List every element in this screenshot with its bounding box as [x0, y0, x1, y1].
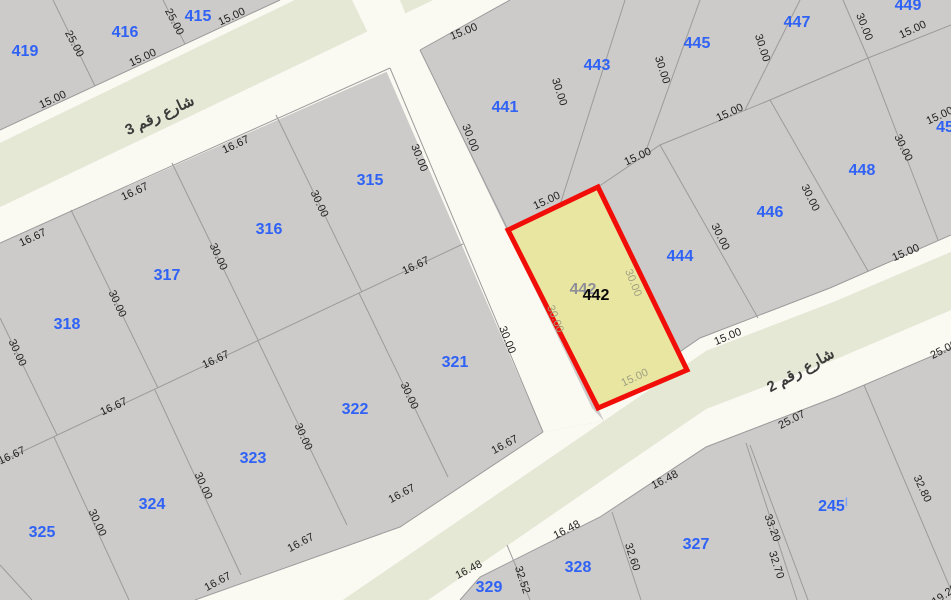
parcel-label-324[interactable]: 324	[139, 496, 166, 513]
parcel-label-323[interactable]: 323	[240, 450, 267, 467]
cadastral-map[interactable]: 25.0025.0015.0015.0015.0016.6716.6716.67…	[0, 0, 951, 600]
parcel-label-448[interactable]: 448	[849, 162, 876, 179]
parcel-label-447[interactable]: 447	[784, 14, 811, 31]
map-viewport[interactable]: 25.0025.0015.0015.0015.0016.6716.6716.67…	[0, 0, 951, 600]
parcel-label-329[interactable]: 329	[476, 579, 503, 596]
parcel-label-444[interactable]: 444	[667, 248, 694, 265]
parcel-label-315[interactable]: 315	[357, 172, 384, 189]
parcel-label-416[interactable]: 416	[112, 24, 139, 41]
parcel-label-449[interactable]: 449	[895, 0, 922, 14]
parcel-label-322[interactable]: 322	[342, 401, 369, 418]
parcel-label-441[interactable]: 441	[492, 99, 519, 116]
parcel-label-443[interactable]: 443	[584, 57, 611, 74]
parcel-label-316[interactable]: 316	[256, 221, 283, 238]
parcel-label-419[interactable]: 419	[12, 43, 39, 60]
parcel-label-245[interactable]: 245ا	[818, 497, 848, 515]
parcel-label-415[interactable]: 415	[185, 8, 212, 25]
parcel-label-325[interactable]: 325	[29, 524, 56, 541]
parcel-label-446[interactable]: 446	[757, 204, 784, 221]
parcel-label-317[interactable]: 317	[154, 267, 181, 284]
highlighted-parcel-label[interactable]: 442	[583, 287, 610, 304]
parcel-label-321[interactable]: 321	[442, 354, 469, 371]
parcel-label-318[interactable]: 318	[54, 316, 81, 333]
parcel-label-327[interactable]: 327	[683, 536, 710, 553]
parcel-label-328[interactable]: 328	[565, 559, 592, 576]
parcel-label-445[interactable]: 445	[684, 35, 711, 52]
parcel-label-45[interactable]: 45	[936, 119, 951, 136]
